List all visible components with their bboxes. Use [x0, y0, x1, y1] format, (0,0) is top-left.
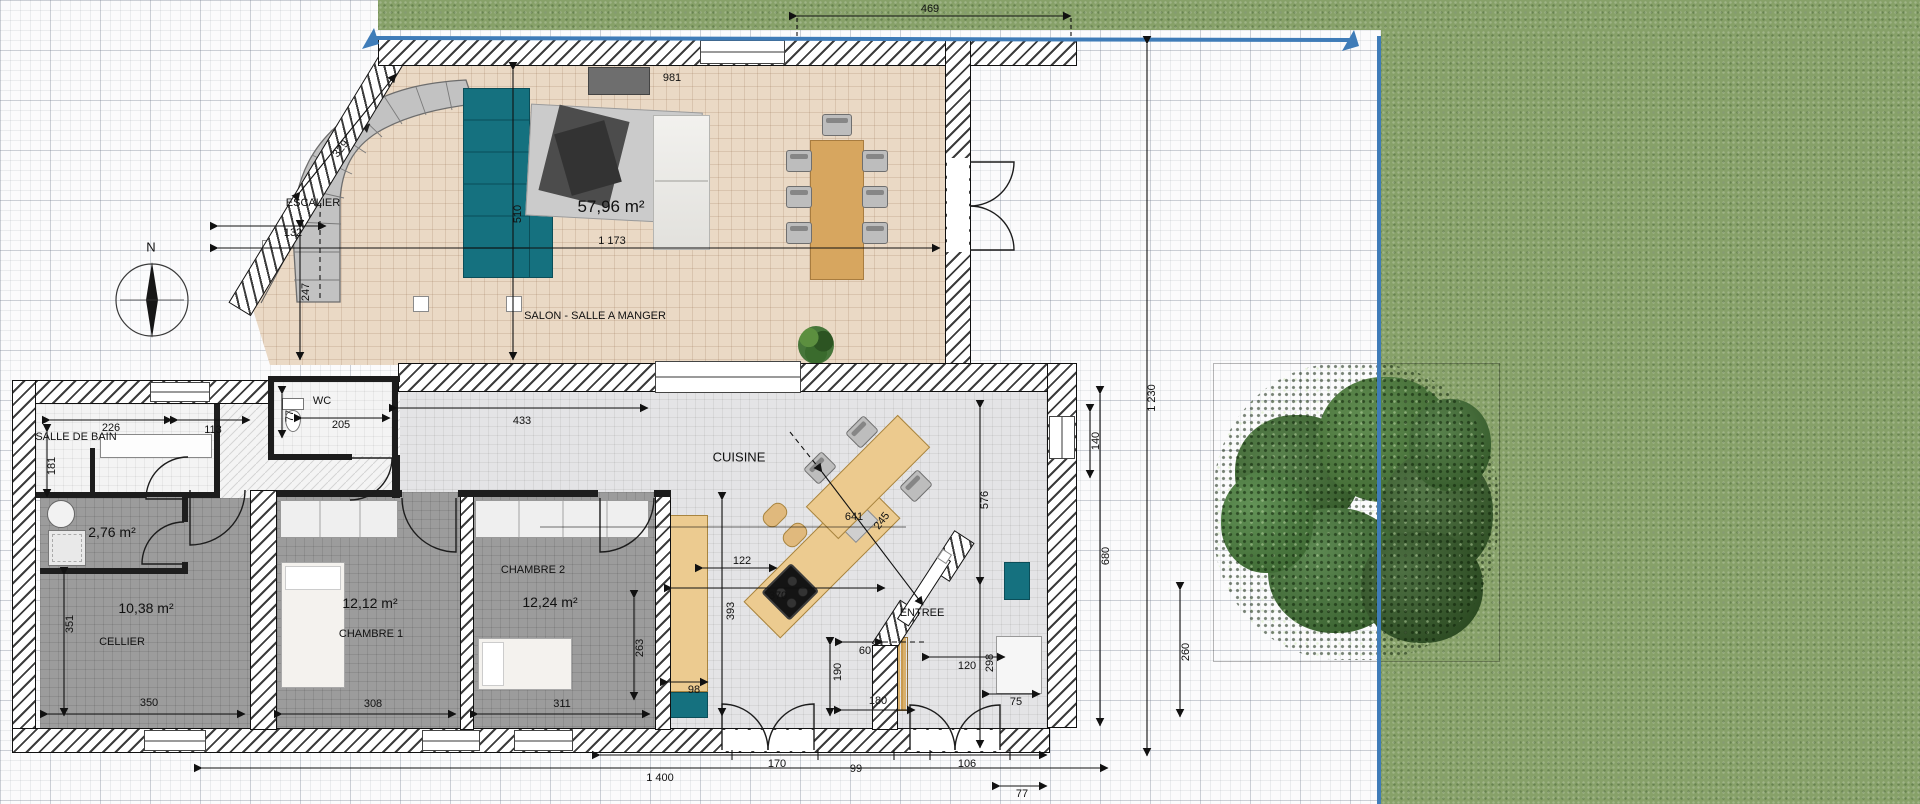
dimension-label[interactable]: 226	[102, 422, 120, 434]
dimension-label[interactable]: 308	[364, 698, 382, 710]
floor-plan-canvas: { "app": {"view": "floor-plan-editor-can…	[0, 0, 1920, 804]
dimension-label[interactable]: 77	[1016, 788, 1028, 800]
room-label-cellier-area[interactable]: 10,38 m²	[118, 600, 173, 616]
dimension-label[interactable]: 60	[859, 645, 871, 657]
room-label-chambre1-area[interactable]: 12,12 m²	[342, 595, 397, 611]
room-label-chambre2-area[interactable]: 12,24 m²	[522, 594, 577, 610]
dimension-label[interactable]: 247	[300, 283, 312, 301]
dimension-label[interactable]: 140	[1090, 432, 1102, 450]
dimension-label[interactable]: 311	[553, 698, 571, 710]
dimension-label[interactable]: 370	[769, 590, 787, 602]
dimension-label[interactable]: 170	[768, 758, 786, 770]
dimension-label[interactable]: 190	[832, 663, 844, 681]
dimension-label[interactable]: 329	[331, 138, 352, 160]
room-label-escalier[interactable]: ESCALIER	[286, 197, 340, 209]
dimension-label[interactable]: 77	[284, 410, 296, 422]
dimension-label[interactable]: 298	[984, 654, 996, 672]
dimension-label[interactable]: 351	[64, 615, 76, 633]
room-label-wc[interactable]: WC	[313, 395, 331, 407]
dimension-label[interactable]: 1 173	[598, 235, 626, 247]
room-label-chambre1[interactable]: CHAMBRE 1	[339, 628, 403, 640]
dimension-label[interactable]: 122	[733, 555, 751, 567]
dimension-label[interactable]: 641	[845, 511, 863, 523]
dimension-label[interactable]: 106	[958, 758, 976, 770]
dimension-label[interactable]: 263	[634, 639, 646, 657]
dimension-label[interactable]: 180	[869, 695, 887, 707]
dimension-label[interactable]: 576	[979, 491, 991, 509]
dimension-label[interactable]: 1 400	[646, 772, 674, 784]
room-label-petite-piece-area[interactable]: 2,76 m²	[88, 524, 135, 540]
dimension-label[interactable]: 132	[284, 227, 302, 239]
dimension-label[interactable]: 680	[1100, 547, 1112, 565]
dimension-label[interactable]: 113	[204, 424, 222, 436]
dimension-label[interactable]: 99	[850, 763, 862, 775]
room-label-salon-area[interactable]: 57,96 m²	[577, 197, 644, 217]
dimension-label[interactable]: 98	[688, 684, 700, 696]
room-label-north[interactable]: N	[146, 240, 155, 255]
dimension-label[interactable]: 260	[1180, 643, 1192, 661]
dimension-label[interactable]: 1 230	[1146, 384, 1158, 412]
room-label-cuisine[interactable]: CUISINE	[713, 450, 766, 465]
room-label-entree[interactable]: ENTREE	[900, 607, 945, 619]
dimension-label[interactable]: 181	[46, 457, 58, 475]
room-label-cellier[interactable]: CELLIER	[99, 636, 145, 648]
dimension-label[interactable]: 120	[958, 660, 976, 672]
plan-labels: SALON - SALLE A MANGER57,96 m²ESCALIERWC…	[0, 0, 1920, 804]
dimension-label[interactable]: 433	[513, 415, 531, 427]
dimension-label[interactable]: 981	[663, 72, 681, 84]
dimension-label[interactable]: 350	[140, 697, 158, 709]
dimension-label[interactable]: 245	[872, 510, 893, 532]
room-label-salon-name[interactable]: SALON - SALLE A MANGER	[524, 310, 666, 322]
dimension-label[interactable]: 510	[512, 205, 524, 223]
dimension-label[interactable]: 469	[921, 3, 939, 15]
dimension-label[interactable]: 75	[1010, 696, 1022, 708]
room-label-chambre2[interactable]: CHAMBRE 2	[501, 564, 565, 576]
dimension-label[interactable]: 393	[725, 602, 737, 620]
dimension-label[interactable]: 205	[332, 419, 350, 431]
